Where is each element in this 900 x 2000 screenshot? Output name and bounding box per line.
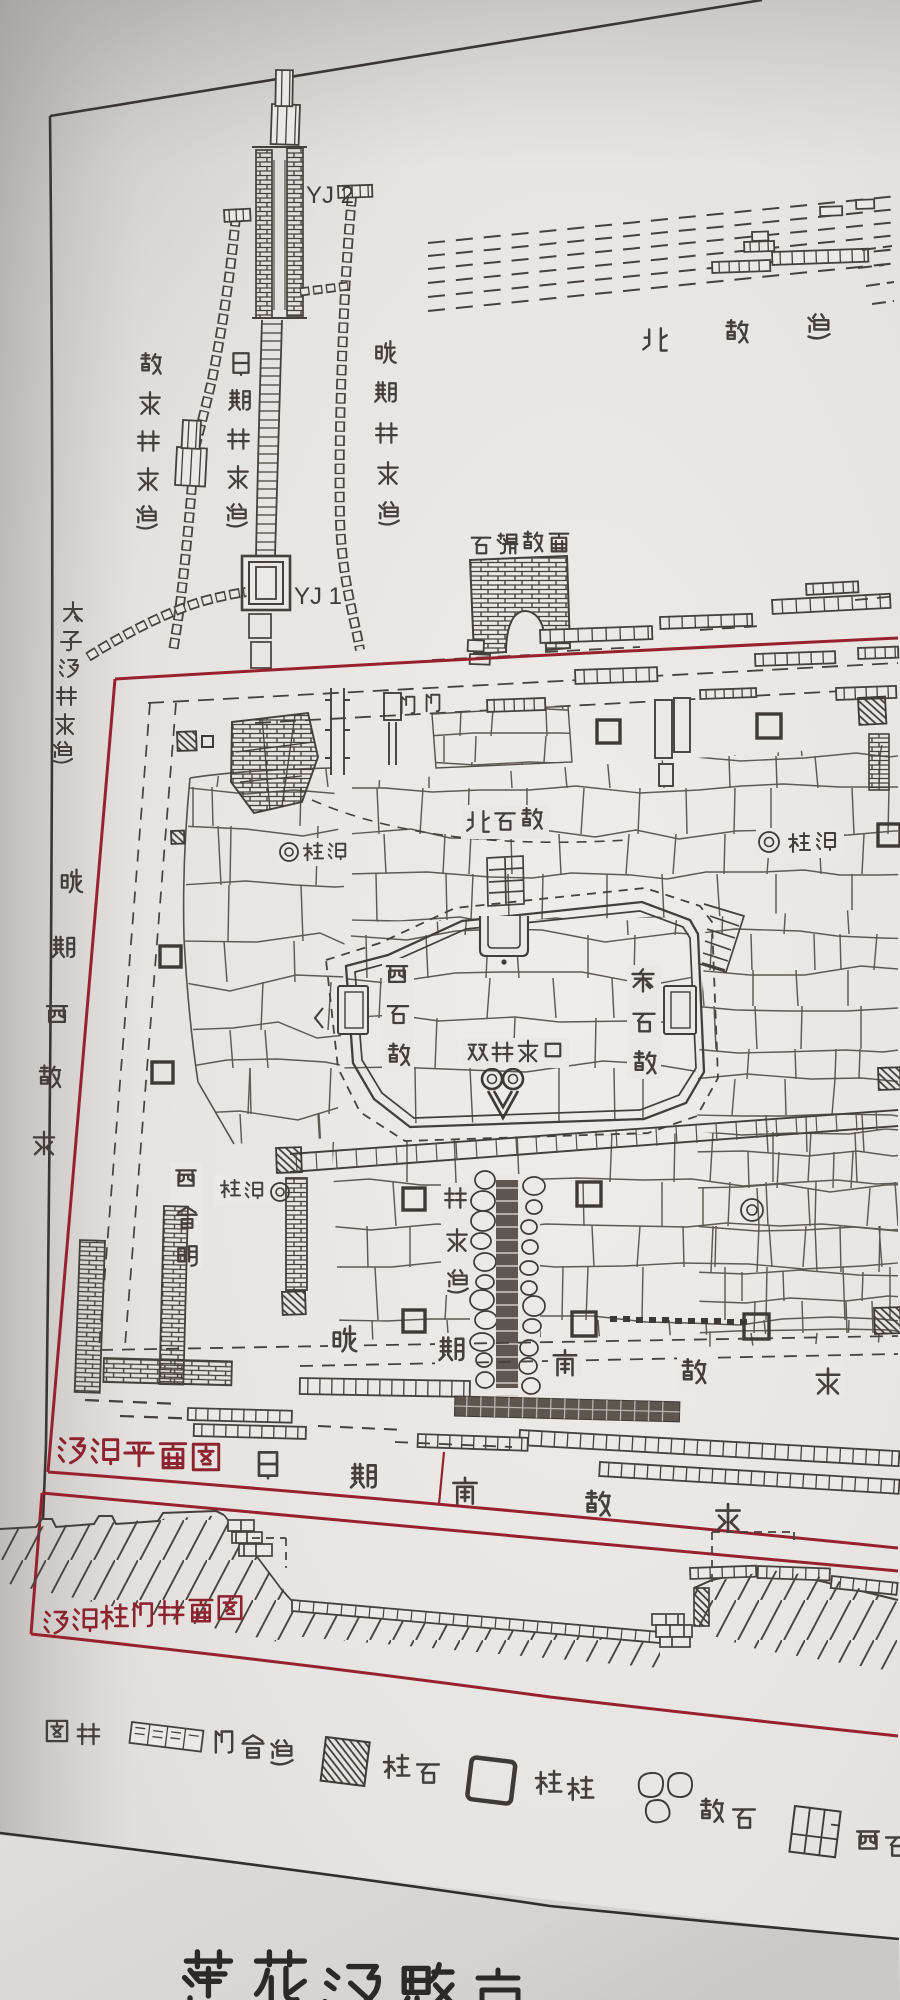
svg-text:YJ 2: YJ 2 bbox=[306, 182, 354, 209]
svg-text:YJ 1: YJ 1 bbox=[294, 583, 342, 610]
